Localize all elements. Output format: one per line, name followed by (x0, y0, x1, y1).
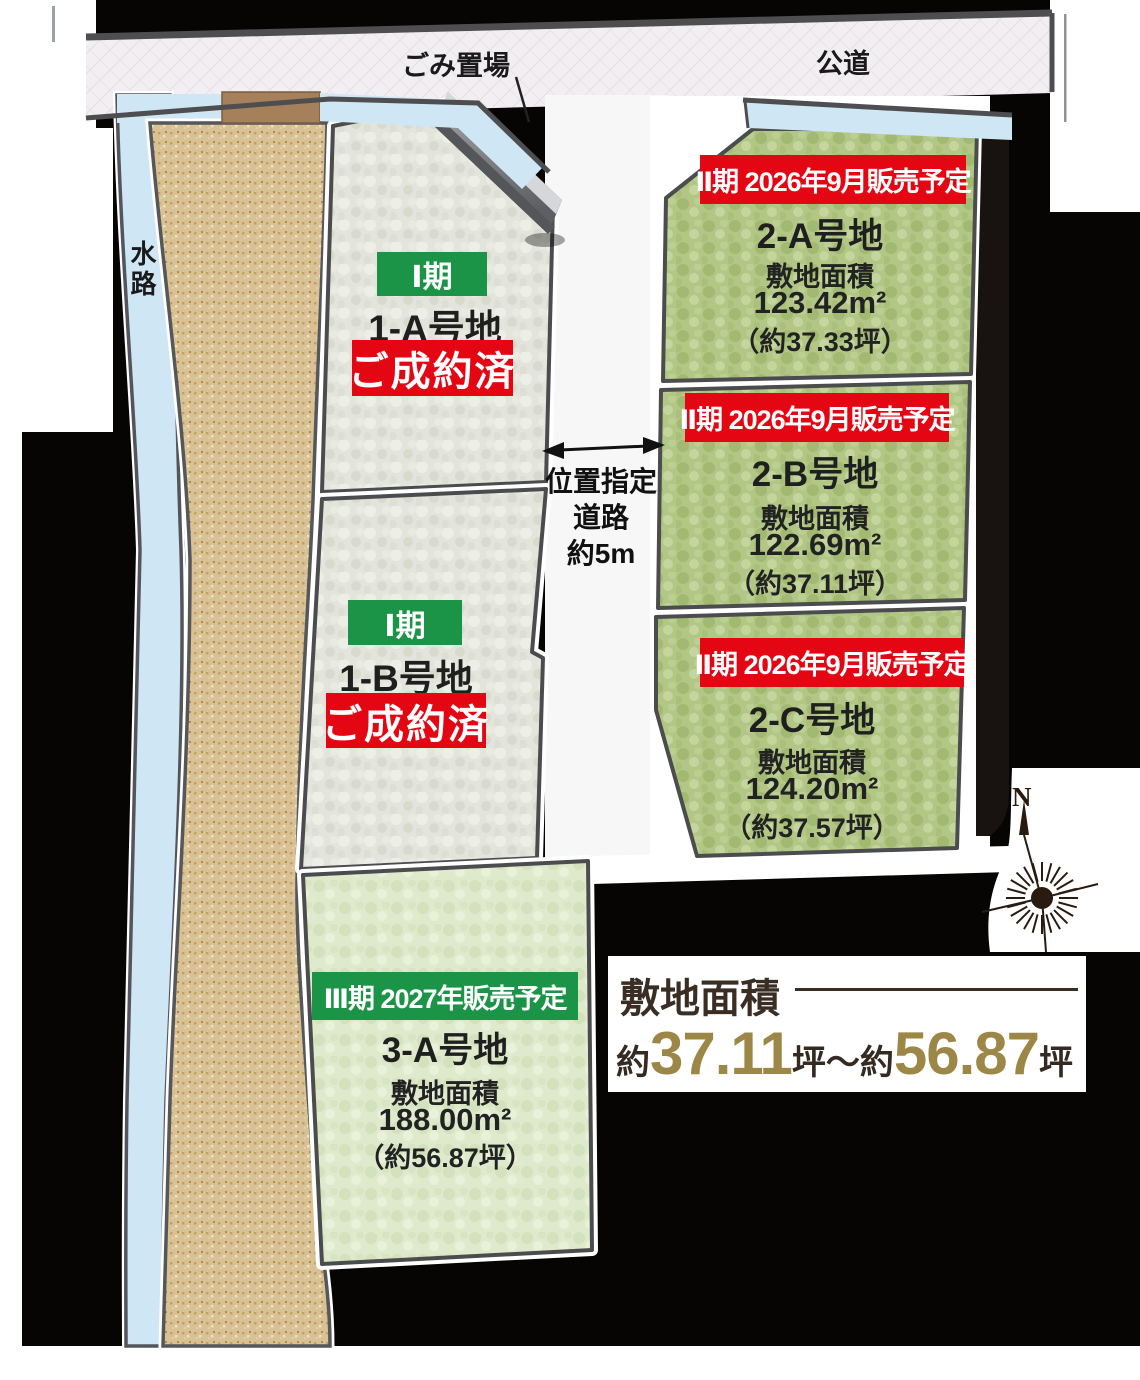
lot-3A-area-tsubo: （約56.87坪） (335, 1136, 555, 1175)
lot-1A-status-banner: ご成約済 (352, 340, 513, 396)
garbage-area-label: ごみ置場 (402, 44, 510, 83)
compass-north-label: N (1012, 782, 1032, 812)
summary-range: 約 37.11 坪 ～ 約 56.87 坪 (616, 1016, 1073, 1084)
lot-2A-phase-banner: Ⅱ期 2026年9月販売予定 (700, 155, 966, 204)
designated-road-line2: 道路 (540, 496, 662, 536)
lot-1B-status-banner: ご成約済 (326, 693, 486, 748)
public-road-label: 公道 (816, 42, 870, 81)
lot-3A-phase-banner: Ⅲ期 2027年販売予定 (312, 972, 578, 1020)
summary-tilde: ～ (826, 1046, 860, 1084)
lot-1B-phase-banner: Ⅰ期 (348, 600, 462, 645)
lot-2B-name: 2-B号地 (715, 446, 915, 497)
lot-2A-area-value: 123.42m² (710, 285, 930, 321)
lot-2A-name: 2-A号地 (720, 208, 920, 259)
summary-unit-2: 坪 (1039, 1046, 1073, 1084)
summary-about-2: 約 (860, 1046, 894, 1084)
site-plan-drawing: N (0, 0, 1140, 1380)
lot-2B-phase-banner: Ⅱ期 2026年9月販売予定 (685, 393, 949, 442)
road-end-thin-line (1064, 14, 1067, 122)
dark-band-right-of-lots (976, 138, 1009, 836)
lot-3A-name: 3-A号地 (345, 1022, 545, 1073)
lot-2C-phase-banner: Ⅱ期 2026年9月販売予定 (700, 638, 964, 687)
lot-2C-name: 2-C号地 (712, 692, 912, 743)
lot-2C-area-tsubo: （約37.57坪） (702, 806, 922, 845)
lot-2B-area-tsubo: （約37.11坪） (705, 562, 925, 601)
lot-2A-area-tsubo: （約37.33坪） (710, 320, 930, 359)
designated-road-line3: 約5m (540, 532, 662, 572)
designated-road-line1: 位置指定 (540, 460, 662, 500)
summary-about-1: 約 (616, 1046, 650, 1084)
site-plan: N ごみ置場 公道 水路 Ⅰ期 1-A号地 ご成約済 Ⅰ期 1-B号地 ご成約済… (0, 0, 1140, 1380)
summary-unit-1: 坪 (792, 1046, 826, 1084)
lot-2B-area-value: 122.69m² (705, 527, 925, 563)
left-edge-tick (52, 6, 55, 42)
lot-2C-area-value: 124.20m² (702, 771, 922, 807)
summary-min-value: 37.11 (650, 1024, 792, 1084)
summary-rule (795, 988, 1078, 991)
waterway-label: 水路 (124, 240, 161, 300)
lot-3A-area-value: 188.00m² (335, 1102, 555, 1138)
lot-1A-phase-banner: Ⅰ期 (377, 252, 487, 296)
summary-max-value: 56.87 (894, 1024, 1039, 1084)
